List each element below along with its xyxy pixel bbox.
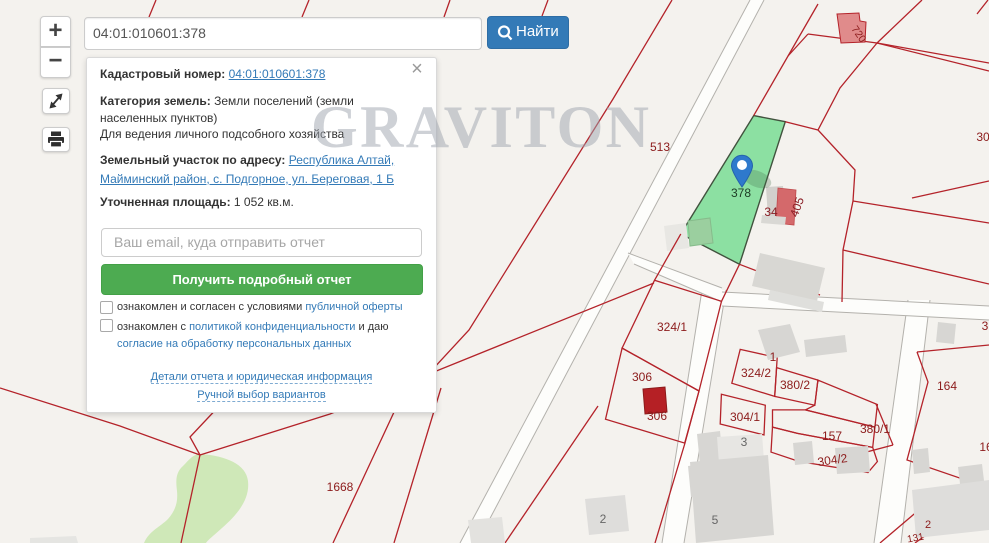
svg-text:131: 131	[906, 532, 925, 543]
svg-text:30: 30	[976, 130, 989, 144]
svg-text:306: 306	[647, 409, 667, 423]
svg-text:2: 2	[925, 519, 931, 531]
svg-text:157: 157	[822, 429, 842, 443]
svg-text:1: 1	[770, 350, 777, 364]
svg-text:304/1: 304/1	[730, 410, 760, 424]
svg-text:324/2: 324/2	[741, 366, 771, 380]
svg-text:164: 164	[937, 379, 957, 393]
svg-text:380/1: 380/1	[860, 422, 890, 436]
svg-text:16: 16	[979, 440, 989, 454]
svg-text:324/1: 324/1	[657, 320, 687, 334]
svg-text:3: 3	[982, 319, 989, 333]
svg-text:513: 513	[650, 140, 670, 154]
svg-text:378: 378	[731, 186, 751, 200]
svg-text:306: 306	[632, 370, 652, 384]
svg-text:1668: 1668	[327, 480, 354, 494]
svg-text:5: 5	[712, 513, 719, 527]
svg-text:380/2: 380/2	[780, 378, 810, 392]
svg-text:34: 34	[764, 205, 778, 219]
svg-text:3: 3	[741, 435, 748, 449]
svg-text:2: 2	[600, 512, 607, 526]
